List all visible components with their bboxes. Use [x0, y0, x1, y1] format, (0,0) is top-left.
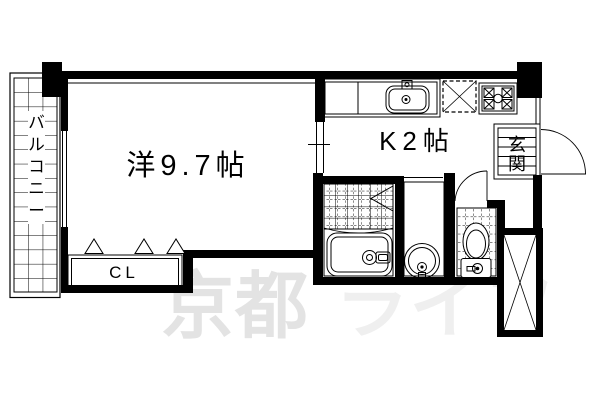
closet-label: CL: [109, 263, 139, 282]
pillar-top-right: [517, 62, 542, 98]
wall-room-kitchen-upper: [315, 79, 325, 122]
wall-bath-left: [313, 173, 323, 285]
wall-bath-top: [313, 176, 404, 184]
wall-toilet-top: [487, 200, 505, 208]
floor-plan-image: 京都 ライフ バ ル コ ニ ー: [0, 0, 600, 400]
balcony-label: バ ル コ ニ ー: [28, 114, 45, 220]
balcony-char: ニ: [28, 180, 45, 198]
entrance-label: 玄 関: [508, 135, 526, 174]
floor-plan-screenshot: 京都 ライフ バ ル コ ニ ー: [0, 0, 600, 400]
balcony-char: ー: [28, 202, 45, 220]
toilet-room: [457, 208, 496, 278]
wall-wet-bottom: [313, 277, 505, 285]
wall-bottom-main: [185, 250, 323, 258]
entrance-char: 玄: [508, 135, 526, 155]
pipe-shaft: [504, 235, 536, 330]
wall-left-lower: [61, 227, 68, 293]
wall-bath-right: [395, 180, 404, 285]
wall-toilet-left: [444, 173, 455, 285]
entrance-char: 関: [508, 154, 526, 174]
main-room-label: 洋9.7帖: [126, 149, 249, 182]
wall-top: [57, 71, 542, 79]
bathroom-tile-grid2: [324, 184, 393, 229]
kitchen-label: K2帖: [379, 126, 455, 156]
toilet-icon: [461, 223, 491, 278]
wall-right-below-entrance: [533, 175, 542, 235]
balcony-char: コ: [28, 158, 45, 176]
balcony-char: ル: [28, 136, 45, 154]
pillar-top-left: [42, 62, 62, 97]
balcony: バ ル コ ニ ー: [10, 73, 60, 298]
balcony-char: バ: [28, 114, 45, 132]
wall-left-upper: [61, 79, 68, 131]
